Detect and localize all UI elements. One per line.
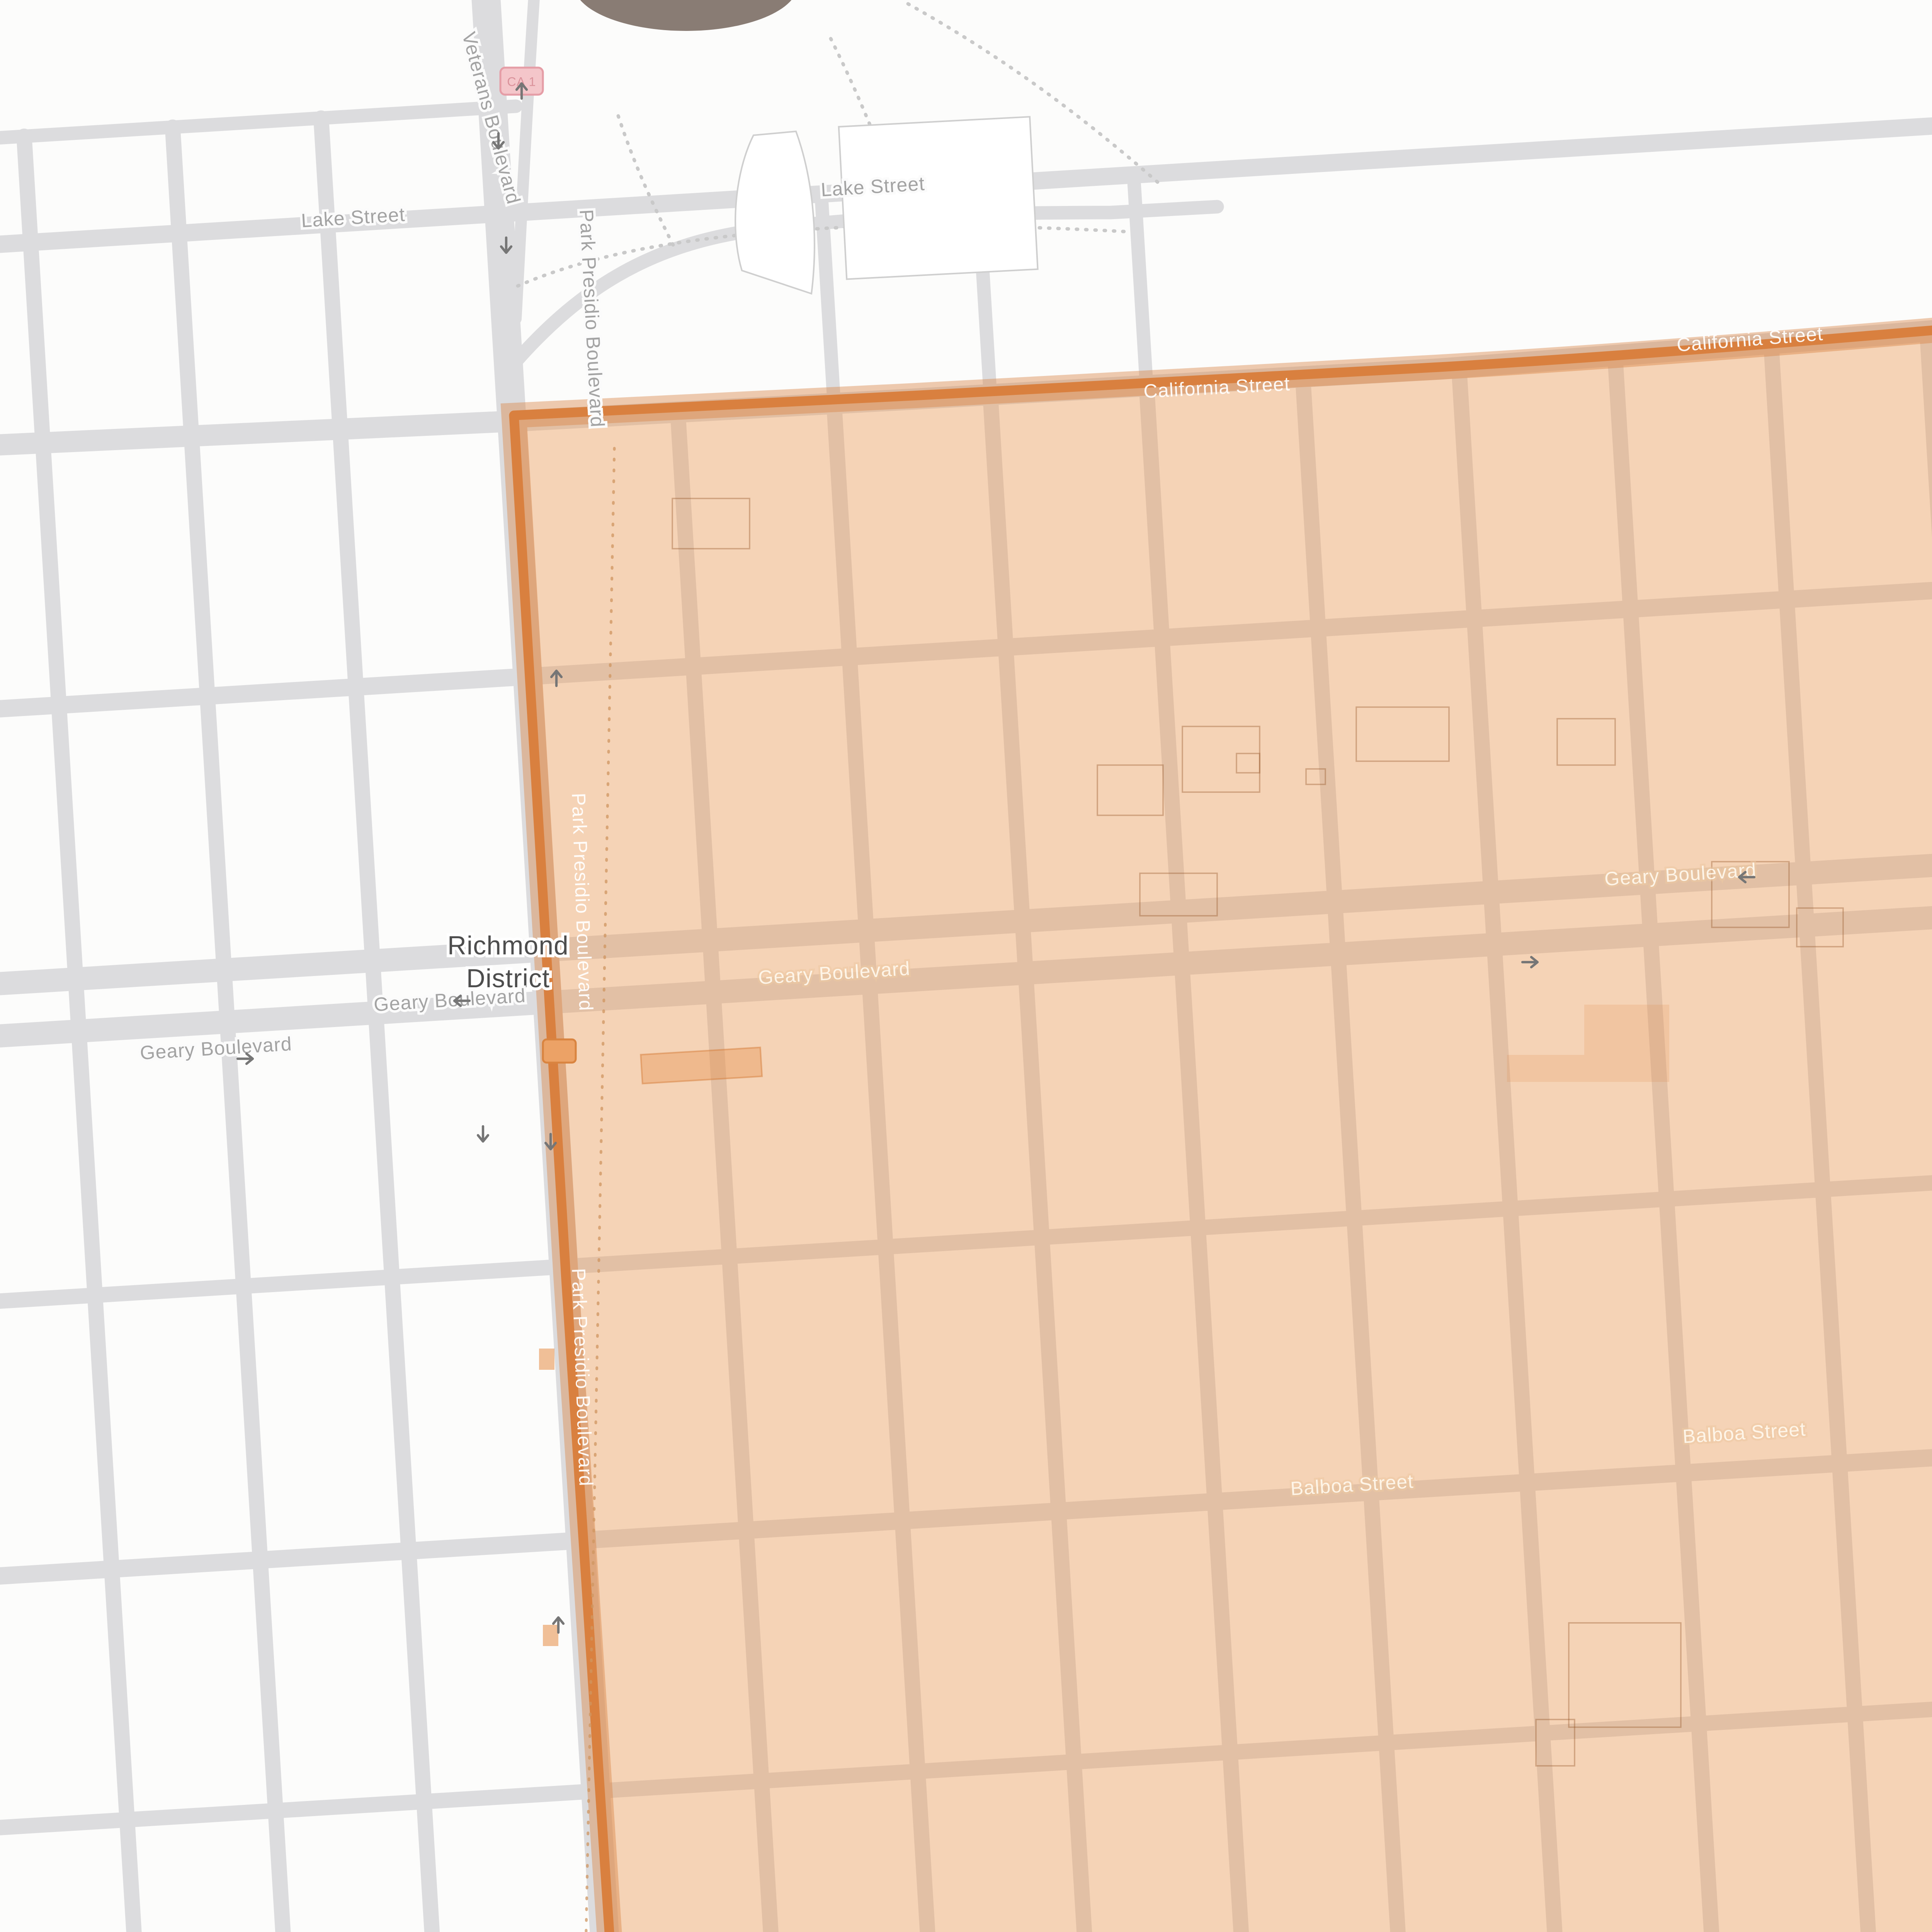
poi-marker (539, 1349, 554, 1370)
district-label-line1: Richmond (447, 931, 569, 960)
building-highlight (641, 1048, 762, 1084)
neighborhood-region[interactable] (514, 290, 1932, 1932)
poi-marker (543, 1039, 576, 1063)
presidio-parcel (735, 131, 815, 294)
poi-marker (543, 1625, 558, 1646)
neighborhood-region-fill[interactable] (514, 290, 1932, 1932)
map-viewport[interactable]: CA 1 Richmond District Lake StreetLake S… (0, 0, 1932, 1932)
presidio-field (839, 117, 1038, 279)
map-canvas[interactable]: CA 1 Richmond District Lake StreetLake S… (0, 0, 1932, 1932)
